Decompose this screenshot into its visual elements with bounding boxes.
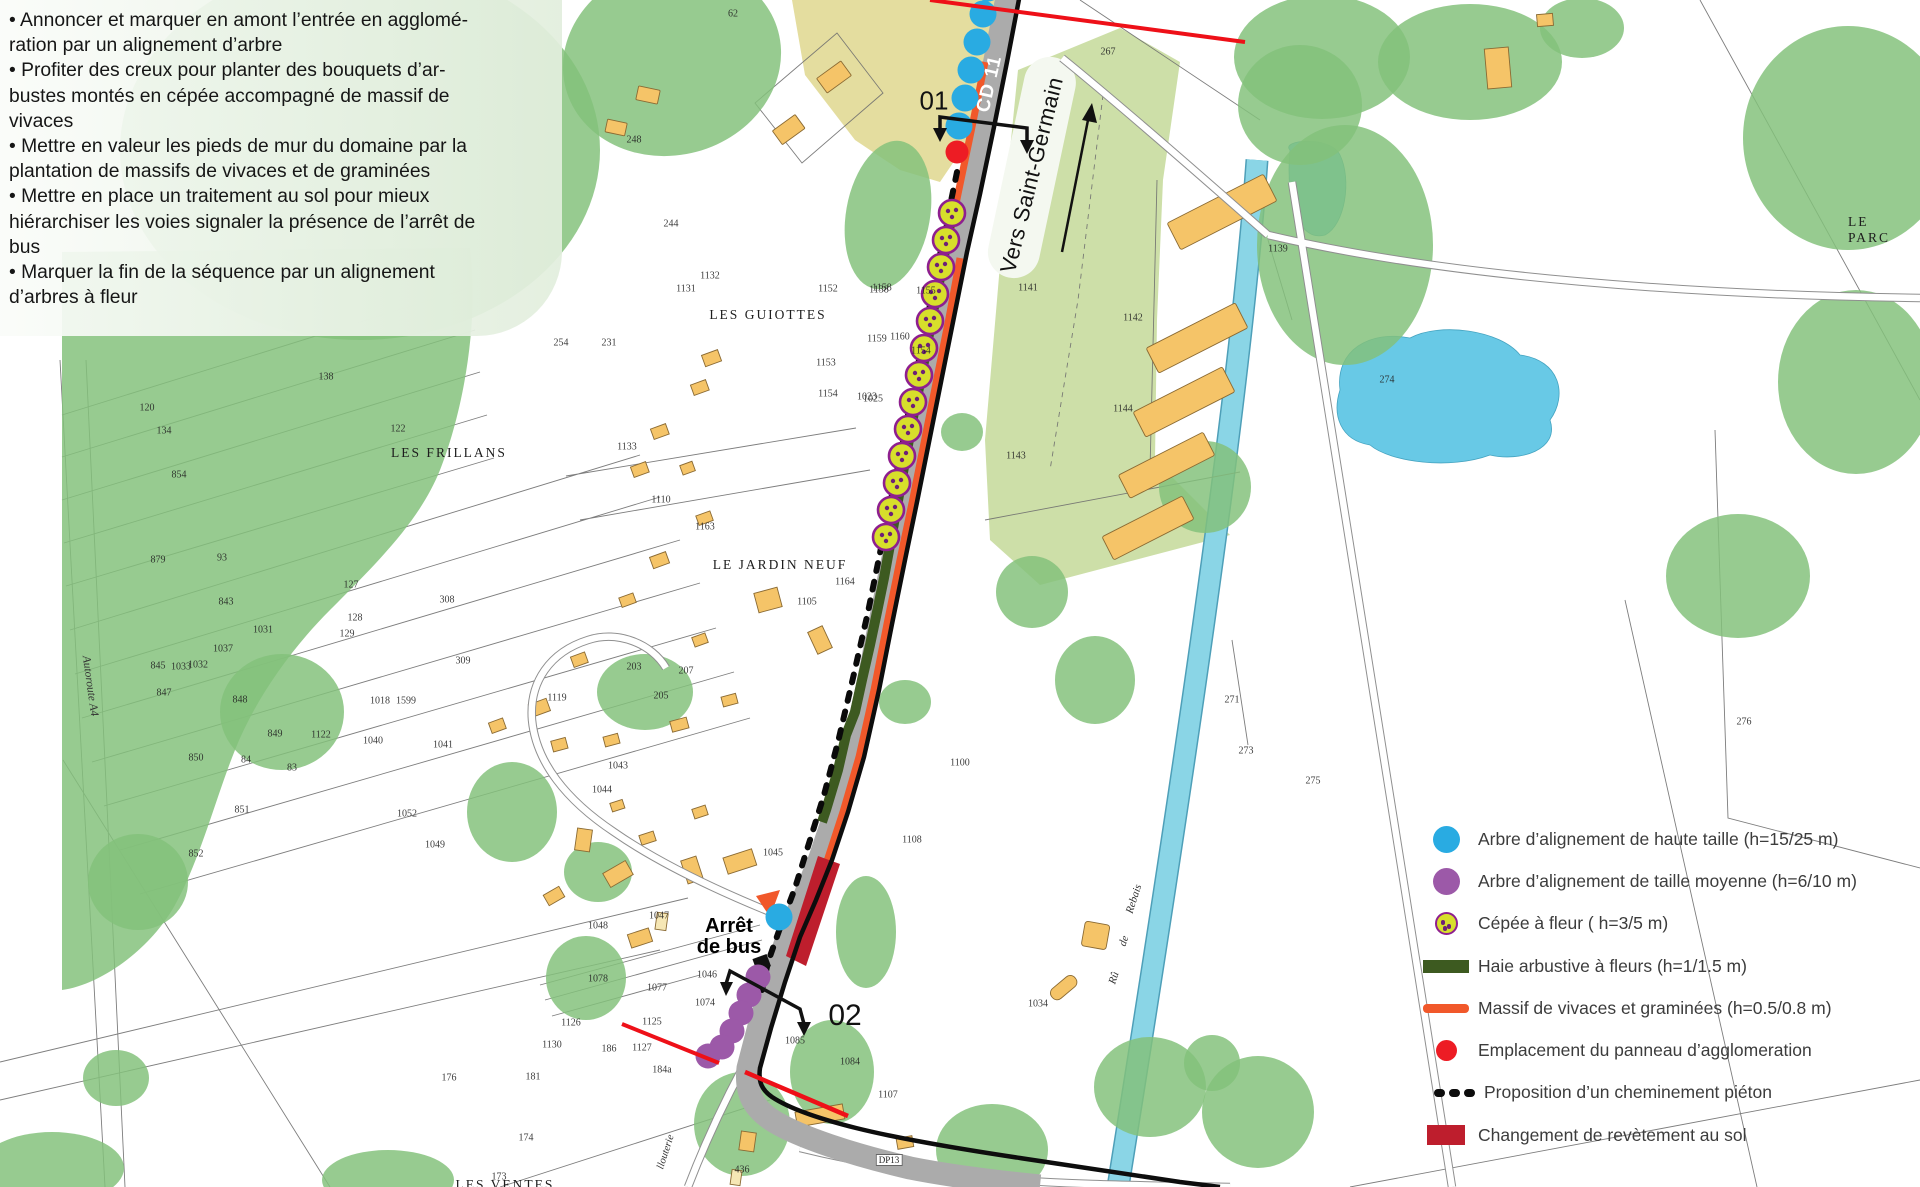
bus-stop-label: Arrêt de bus	[697, 916, 761, 958]
note-bullet: • Mettre en valeur les pieds de mur du d…	[9, 134, 556, 184]
legend-row: Emplacement du panneau d’agglomeration	[1428, 1029, 1857, 1071]
legend-row: Haie arbustive à fleurs (h=1/1.5 m)	[1428, 945, 1857, 987]
legend-label: Cépée à fleur ( h=3/5 m)	[1478, 913, 1668, 934]
legend-row: Arbre d’alignement de haute taille (h=15…	[1428, 818, 1857, 860]
legend-row: Changement de revètement au sol	[1428, 1114, 1857, 1156]
legend-label: Arbre d’alignement de haute taille (h=15…	[1478, 829, 1838, 850]
legend-row: Cépée à fleur ( h=3/5 m)	[1428, 903, 1857, 945]
place-le-parc: LE PARC	[1848, 214, 1896, 246]
note-bullet: • Mettre en place un traitement au sol p…	[9, 184, 556, 260]
planting-plan-map: 6226724824411521138113111322542311153115…	[0, 0, 1920, 1187]
section-label-02: 02	[828, 999, 861, 1033]
high-tree-swatch-icon	[1433, 826, 1460, 853]
note-bullet: • Marquer la fin de la séquence par un a…	[9, 260, 556, 310]
legend-label: Massif de vivaces et graminées (h=0.5/0.…	[1478, 998, 1832, 1019]
notes-panel: • Annoncer et marquer en amont l’entrée …	[0, 0, 562, 336]
hedge-swatch-icon	[1423, 960, 1469, 973]
place-les-ventes: LES VENTES	[456, 1177, 555, 1187]
legend-row: Proposition d’un cheminement piéton	[1428, 1072, 1857, 1114]
legend-label: Changement de revètement au sol	[1478, 1125, 1747, 1146]
legend-label: Emplacement du panneau d’agglomeration	[1478, 1040, 1812, 1061]
pieton-swatch-icon	[1434, 1089, 1475, 1097]
legend-row: Massif de vivaces et graminées (h=0.5/0.…	[1428, 987, 1857, 1029]
place-le-jardin-neuf: LE JARDIN NEUF	[713, 557, 848, 573]
place-les-guiottes: LES GUIOTTES	[709, 307, 826, 323]
cepee-swatch-icon	[1435, 912, 1458, 935]
road-label-dp13: DP13	[876, 1154, 903, 1166]
legend-row: Arbre d’alignement de taille moyenne (h=…	[1428, 860, 1857, 902]
section-label-01: 01	[920, 86, 949, 117]
panneau-symbols	[946, 141, 969, 164]
medium-tree-swatch-icon	[1433, 868, 1460, 895]
place-les-frillans: LES FRILLANS	[391, 445, 507, 461]
panneau-swatch-icon	[1436, 1040, 1457, 1061]
legend: Arbre d’alignement de haute taille (h=15…	[1428, 818, 1857, 1156]
legend-label: Arbre d’alignement de taille moyenne (h=…	[1478, 871, 1857, 892]
revetement-swatch-icon	[1427, 1125, 1465, 1145]
legend-label: Haie arbustive à fleurs (h=1/1.5 m)	[1478, 956, 1747, 977]
note-bullet: • Annoncer et marquer en amont l’entrée …	[9, 8, 556, 58]
legend-label: Proposition d’un cheminement piéton	[1484, 1082, 1772, 1103]
note-bullet: • Profiter des creux pour planter des bo…	[9, 58, 556, 134]
massif-swatch-icon	[1423, 1004, 1469, 1013]
